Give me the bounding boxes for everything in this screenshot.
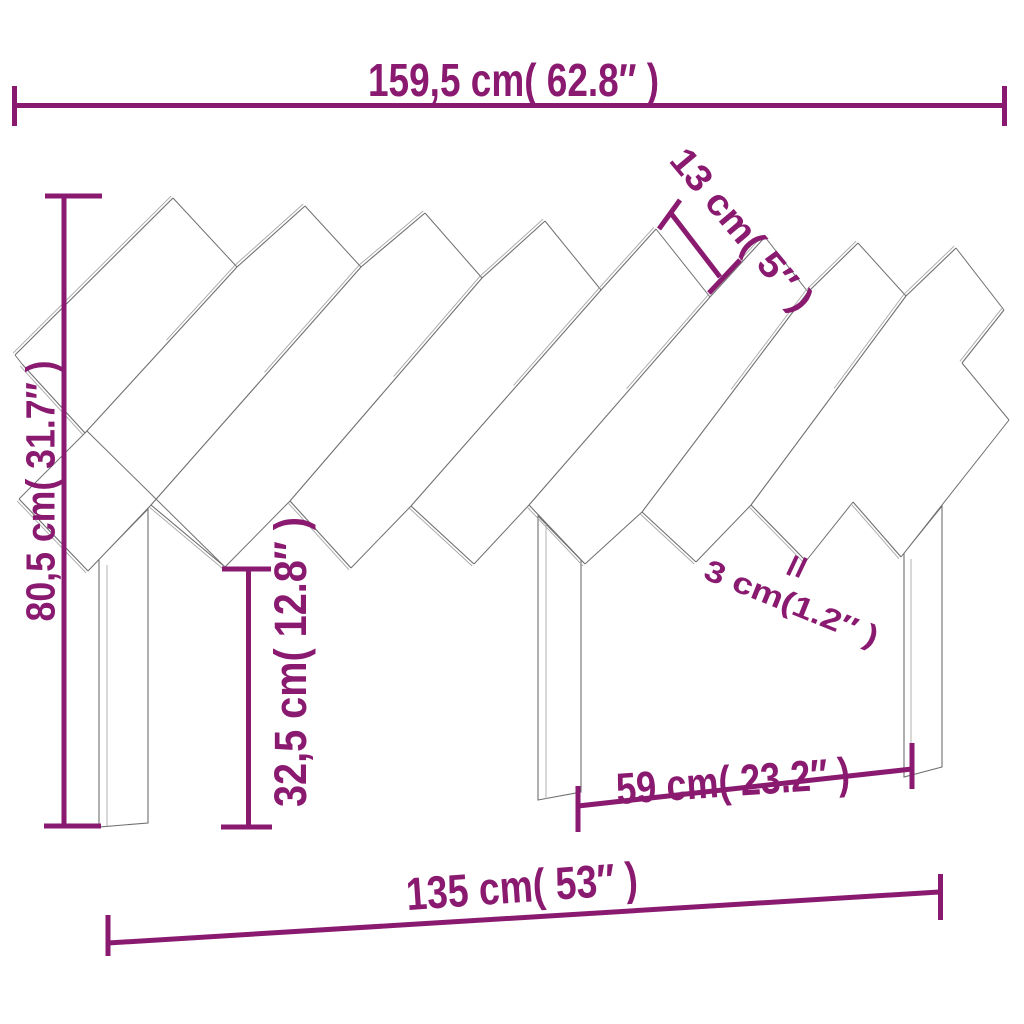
svg-text:32,5 cm( 12.8″ ): 32,5 cm( 12.8″ ) bbox=[265, 517, 316, 807]
svg-text:159,5 cm( 62.8″ ): 159,5 cm( 62.8″ ) bbox=[368, 54, 659, 106]
svg-text:80,5 cm( 31.7″ ): 80,5 cm( 31.7″ ) bbox=[18, 361, 64, 622]
